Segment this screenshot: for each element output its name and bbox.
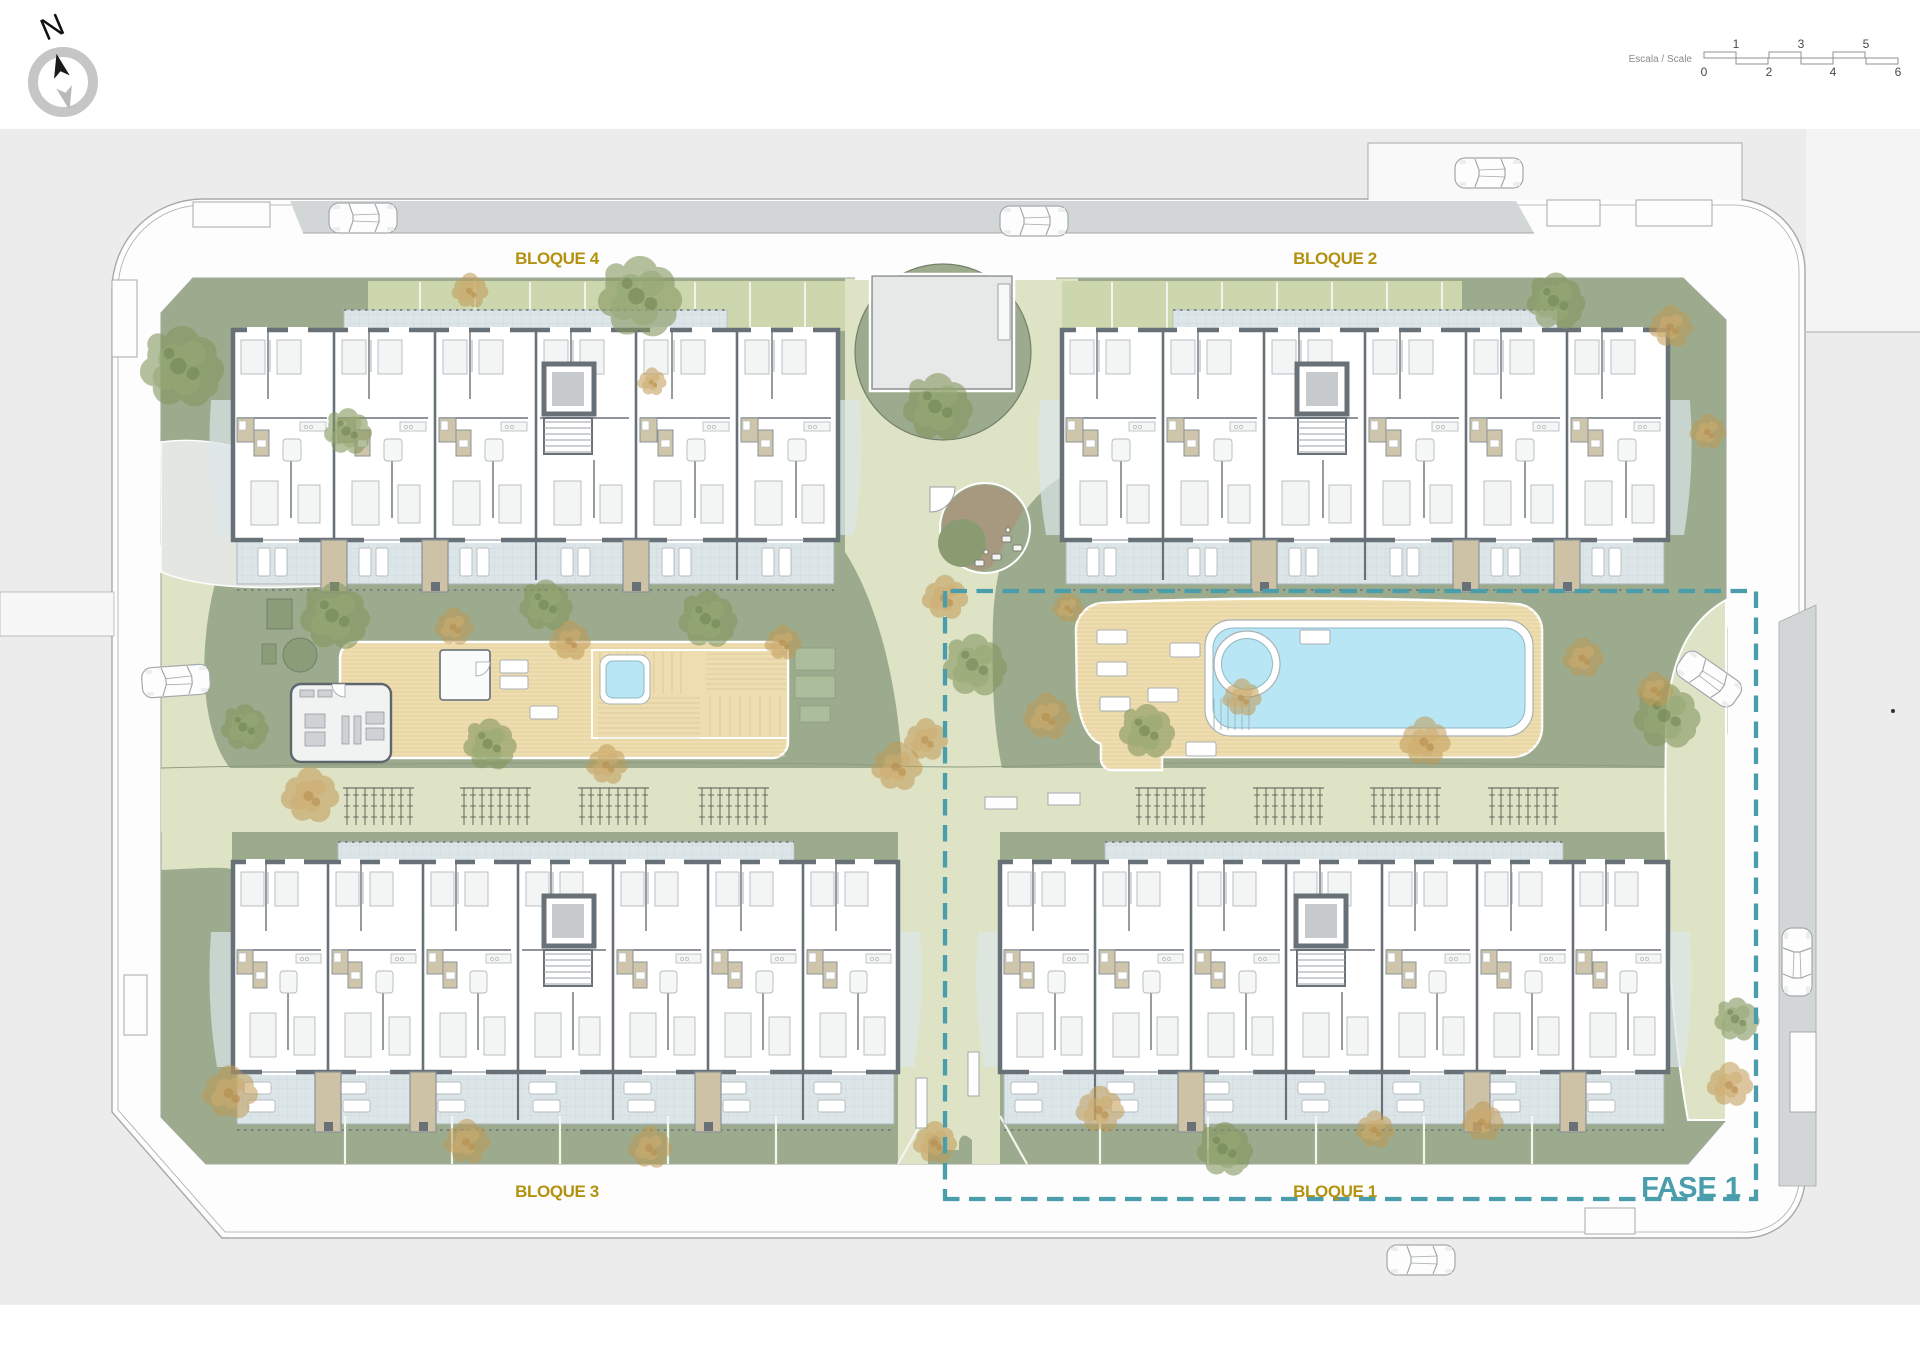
svg-text:BLOQUE 2: BLOQUE 2 [1293,249,1377,268]
svg-text:0: 0 [1701,65,1708,79]
svg-text:6: 6 [1895,65,1902,79]
svg-text:BLOQUE 4: BLOQUE 4 [515,249,600,268]
svg-text:5: 5 [1863,37,1870,51]
svg-text:BLOQUE 3: BLOQUE 3 [515,1182,599,1201]
svg-text:3: 3 [1798,37,1805,51]
svg-text:1: 1 [1733,37,1740,51]
svg-text:Escala / Scale: Escala / Scale [1629,54,1693,65]
svg-text:4: 4 [1830,65,1837,79]
svg-text:FASE 1: FASE 1 [1641,1172,1741,1204]
svg-text:BLOQUE 1: BLOQUE 1 [1293,1182,1377,1201]
svg-text:2: 2 [1766,65,1773,79]
